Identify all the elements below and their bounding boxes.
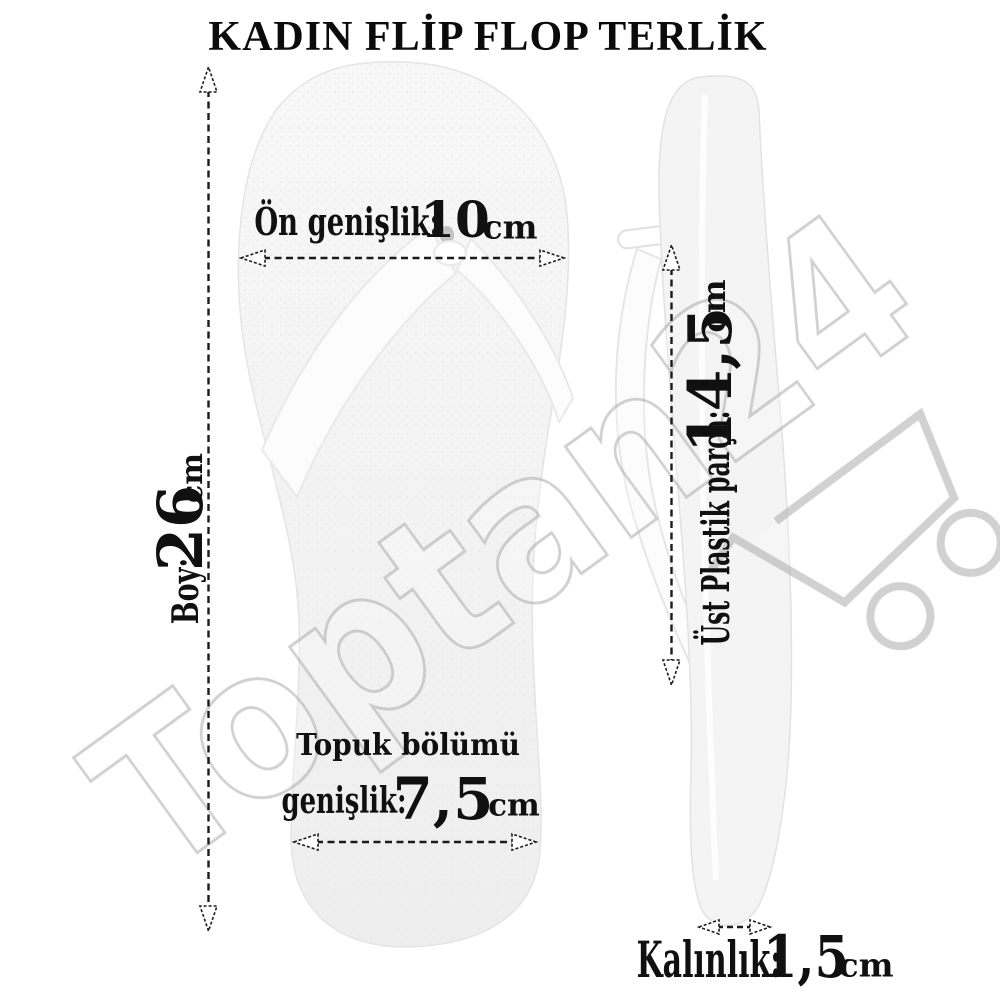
- thickness-label: Kalınlık:: [637, 935, 782, 985]
- heel-width-heading: Topuk bölümü: [296, 731, 520, 761]
- front-width-label: Ön genişlik:: [254, 203, 439, 241]
- thickness-value: 1,5: [763, 928, 849, 986]
- length-unit: cm: [178, 453, 208, 503]
- heel-width-unit: cm: [488, 791, 540, 822]
- heel-width-label: genişlik:: [281, 783, 406, 819]
- page-title: KADIN FLİP FLOP TERLİK: [208, 13, 767, 61]
- top-plastic-unit: cm: [698, 279, 730, 332]
- length-arrowhead-bottom: [200, 906, 217, 931]
- thickness-unit: cm: [838, 949, 893, 982]
- front-width-value: 10: [420, 195, 490, 245]
- top-plastic-arrowhead-bottom: [663, 660, 680, 685]
- front-width-unit: cm: [482, 211, 537, 244]
- product-dimension-diagram: Toptan24: [0, 0, 1000, 1000]
- length-arrowhead-top: [200, 67, 217, 92]
- heel-width-value: 7,5: [393, 770, 494, 828]
